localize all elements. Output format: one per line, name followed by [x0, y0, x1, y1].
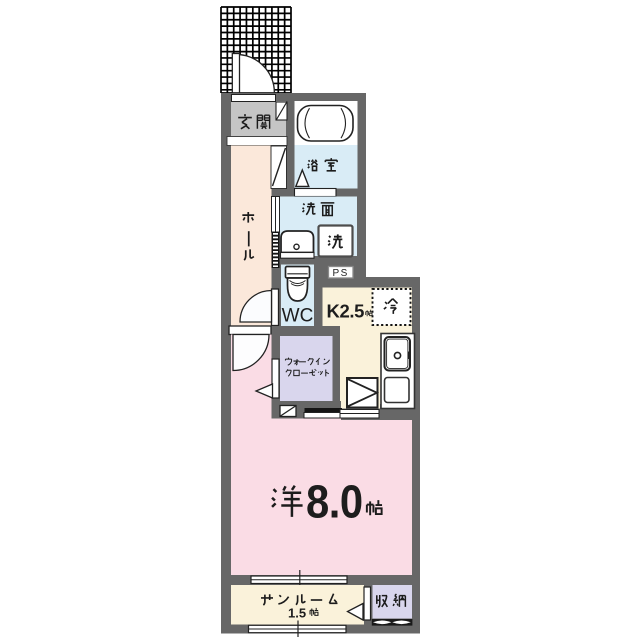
svg-text:8.0: 8.0 [306, 476, 363, 528]
svg-text:K2.5: K2.5 [327, 301, 365, 322]
svg-text:1.5: 1.5 [288, 606, 306, 621]
svg-text:WC: WC [282, 306, 314, 327]
svg-text:PS: PS [333, 268, 349, 279]
